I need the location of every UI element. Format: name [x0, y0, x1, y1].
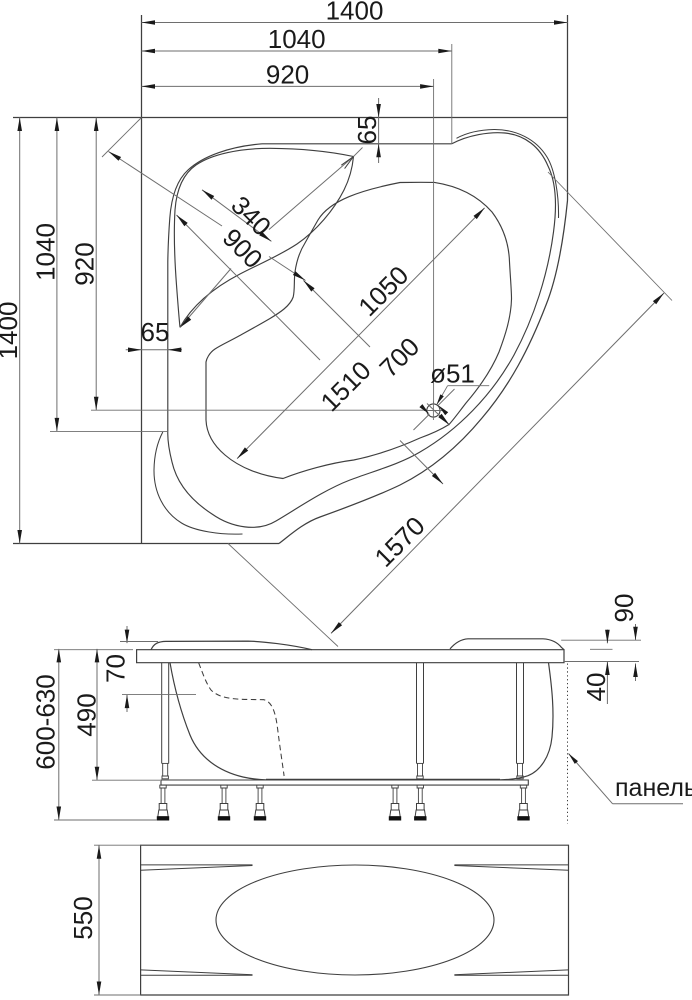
svg-text:920: 920: [266, 59, 309, 89]
svg-text:65: 65: [141, 317, 170, 347]
svg-text:550: 550: [68, 896, 98, 939]
svg-text:65: 65: [352, 116, 382, 145]
svg-text:920: 920: [70, 242, 100, 285]
svg-text:1400: 1400: [326, 0, 384, 26]
svg-text:90: 90: [609, 594, 639, 623]
svg-text:70: 70: [101, 654, 131, 683]
svg-text:1400: 1400: [0, 302, 23, 360]
svg-text:1040: 1040: [268, 24, 326, 54]
svg-text:панель: панель: [615, 774, 692, 802]
svg-text:ø51: ø51: [430, 359, 475, 389]
svg-text:600-630: 600-630: [31, 674, 61, 769]
svg-text:1040: 1040: [30, 223, 60, 281]
svg-text:40: 40: [581, 673, 611, 702]
svg-text:490: 490: [72, 693, 102, 736]
